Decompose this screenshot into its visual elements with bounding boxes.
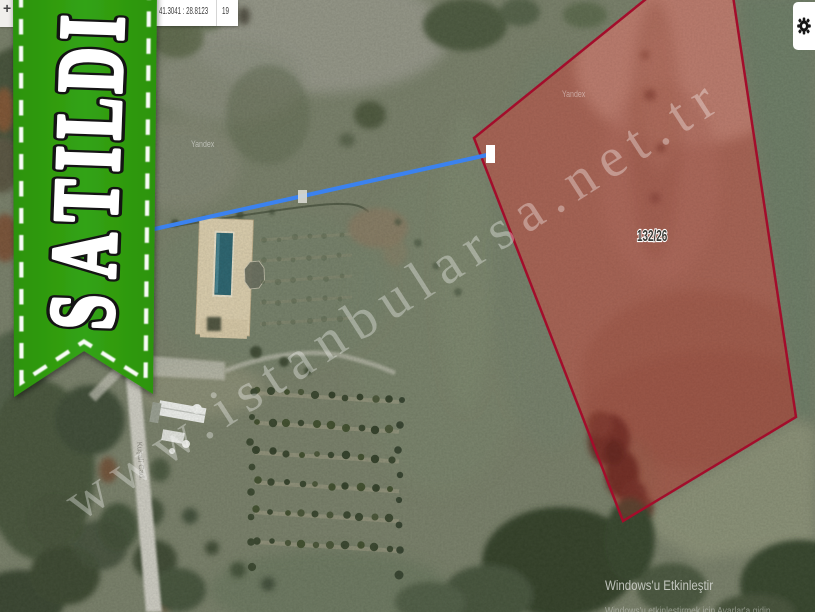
svg-text:132/26: 132/26 bbox=[637, 227, 667, 245]
svg-text:Yandex: Yandex bbox=[562, 89, 585, 99]
